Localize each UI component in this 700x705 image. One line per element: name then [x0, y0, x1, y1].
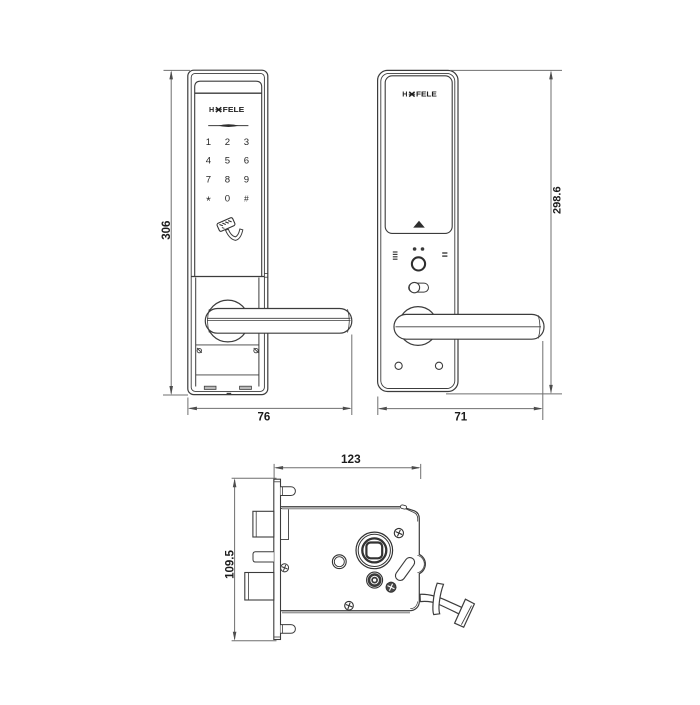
- svg-text:0: 0: [225, 194, 230, 205]
- svg-text:*: *: [206, 194, 211, 208]
- svg-text:FELE: FELE: [223, 105, 245, 114]
- svg-text:123: 123: [341, 452, 361, 466]
- svg-text:H: H: [209, 105, 214, 114]
- svg-text:2: 2: [225, 137, 230, 148]
- svg-text:6: 6: [244, 156, 249, 167]
- svg-text:9: 9: [244, 175, 249, 186]
- svg-text:71: 71: [454, 411, 467, 423]
- svg-text:FELE: FELE: [416, 90, 437, 99]
- svg-text:7: 7: [206, 175, 211, 186]
- svg-text:#: #: [244, 193, 249, 203]
- svg-text:H: H: [402, 90, 407, 99]
- svg-text:109.5: 109.5: [224, 550, 236, 579]
- svg-text:8: 8: [225, 175, 230, 186]
- svg-text:4: 4: [206, 156, 212, 167]
- svg-text:298.6: 298.6: [551, 186, 563, 214]
- svg-text:3: 3: [244, 137, 249, 148]
- svg-text:306: 306: [161, 221, 173, 240]
- svg-text:5: 5: [225, 156, 230, 167]
- svg-text:76: 76: [258, 412, 271, 424]
- svg-text:1: 1: [206, 137, 211, 148]
